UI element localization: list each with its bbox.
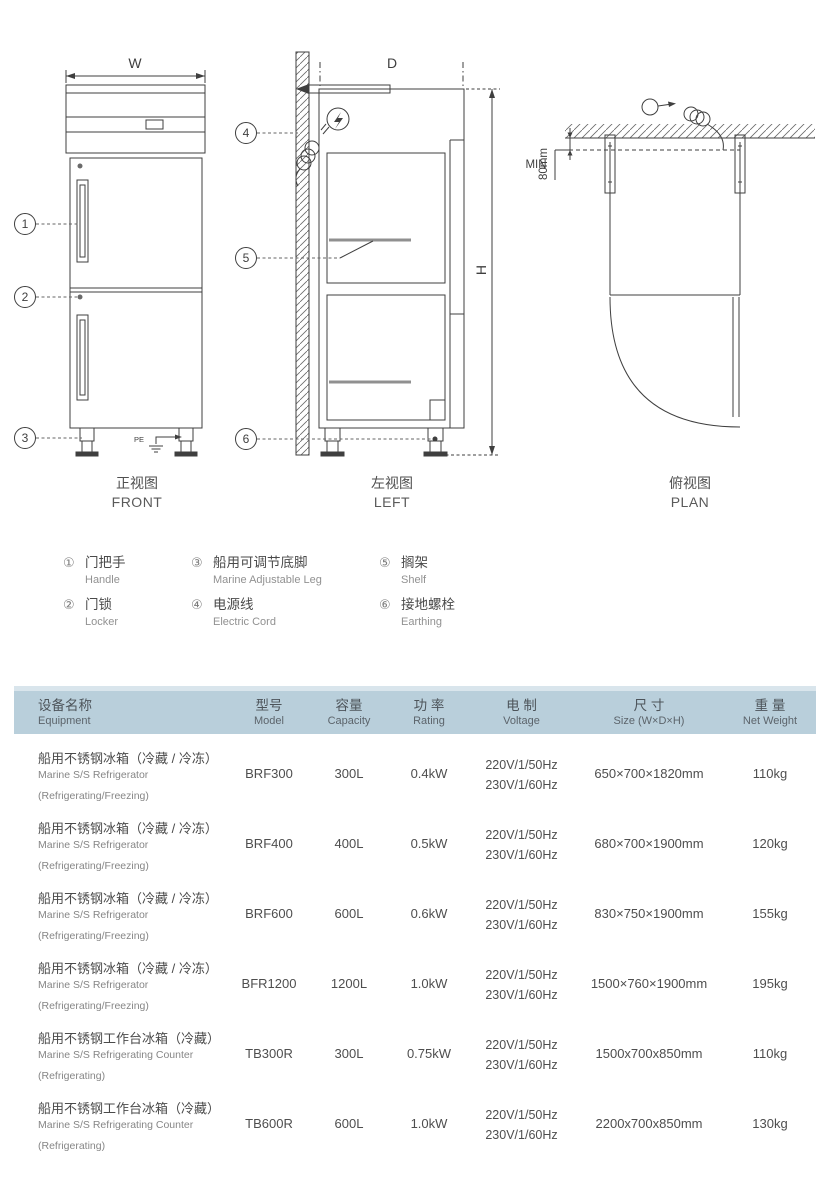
legend-cn-3: 船用可调节底脚 bbox=[213, 554, 379, 571]
svg-text:2: 2 bbox=[22, 290, 29, 304]
row2-voltage1: 220V/1/50Hz bbox=[469, 825, 574, 845]
legend-cn-5: 搁架 bbox=[401, 554, 569, 571]
callout-1-marker: 1 bbox=[15, 214, 79, 235]
callout-6-marker: 6 bbox=[236, 429, 438, 450]
legend-num-4: ④ bbox=[191, 596, 213, 613]
legend-en-4: Electric Cord bbox=[213, 615, 379, 629]
header-model: 型号 Model bbox=[229, 696, 309, 729]
dim-d-label: D bbox=[387, 55, 397, 71]
legend-column-3: ⑤ 搁架 Shelf ⑥ 接地螺栓 Earthing bbox=[379, 554, 569, 629]
front-view-drawing: 1 2 3 W PE bbox=[0, 50, 230, 470]
row4-name-en: Marine S/S Refrigerator bbox=[38, 979, 229, 992]
row1-name-note: (Refrigerating/Freezing) bbox=[38, 790, 229, 803]
legend-num-1: ① bbox=[63, 554, 85, 571]
svg-text:1: 1 bbox=[22, 217, 29, 231]
row3-size: 830×750×1900mm bbox=[574, 882, 724, 921]
svg-text:3: 3 bbox=[22, 431, 29, 445]
row2-capacity: 400L bbox=[309, 812, 389, 851]
row1-voltage1: 220V/1/50Hz bbox=[469, 755, 574, 775]
legend-item-handle: ① 门把手 Handle bbox=[63, 554, 191, 587]
front-view-label: 正视图 FRONT bbox=[67, 474, 207, 512]
row6-size: 2200x700x850mm bbox=[574, 1092, 724, 1131]
left-label-en: LEFT bbox=[322, 493, 462, 512]
legend-cn-6: 接地螺栓 bbox=[401, 596, 569, 613]
header-size: 尺 寸 Size (W×D×H) bbox=[574, 696, 724, 729]
legend-column-1: ① 门把手 Handle ② 门锁 Locker bbox=[63, 554, 191, 629]
parts-legend: ① 门把手 Handle ② 门锁 Locker ③ 船用可调节底脚 Marin… bbox=[63, 554, 569, 629]
header-voltage: 电 制 Voltage bbox=[469, 696, 574, 729]
gap-label: 80mm bbox=[538, 148, 550, 180]
legend-item-earthing: ⑥ 接地螺栓 Earthing bbox=[379, 596, 569, 629]
row2-rating: 0.5kW bbox=[389, 812, 469, 851]
row3-name-cn: 船用不锈钢冰箱（冷藏 / 冷冻） bbox=[38, 891, 229, 906]
row4-model: BFR1200 bbox=[229, 952, 309, 991]
legend-cn-1: 门把手 bbox=[85, 554, 191, 571]
row3-model: BRF600 bbox=[229, 882, 309, 921]
legend-item-locker: ② 门锁 Locker bbox=[63, 596, 191, 629]
row5-weight: 110kg bbox=[724, 1022, 816, 1061]
row4-name-cn: 船用不锈钢冰箱（冷藏 / 冷冻） bbox=[38, 961, 229, 976]
legend-en-1: Handle bbox=[85, 573, 191, 587]
datasheet-page: 1 2 3 W PE bbox=[0, 0, 830, 1186]
front-label-en: FRONT bbox=[67, 493, 207, 512]
legend-cn-2: 门锁 bbox=[85, 596, 191, 613]
row3-name-en: Marine S/S Refrigerator bbox=[38, 909, 229, 922]
header-net-weight: 重 量 Net Weight bbox=[724, 696, 816, 729]
callout-3-marker: 3 bbox=[15, 428, 83, 449]
plan-view-drawing: MIN 80mm bbox=[510, 50, 830, 470]
plan-label-cn: 俯视图 bbox=[620, 474, 760, 493]
row6-model: TB600R bbox=[229, 1092, 309, 1131]
row5-voltage2: 230V/1/60Hz bbox=[469, 1055, 574, 1075]
row3-weight: 155kg bbox=[724, 882, 816, 921]
legend-num-3: ③ bbox=[191, 554, 213, 571]
left-view-label: 左视图 LEFT bbox=[322, 474, 462, 512]
left-view-drawing: 4 5 6 D H bbox=[230, 50, 510, 470]
row6-voltage2: 230V/1/60Hz bbox=[469, 1125, 574, 1145]
legend-en-3: Marine Adjustable Leg bbox=[213, 573, 379, 587]
row5-rating: 0.75kW bbox=[389, 1022, 469, 1061]
pe-label: PE bbox=[134, 435, 144, 444]
table-row: 船用不锈钢冰箱（冷藏 / 冷冻） Marine S/S Refrigerator… bbox=[14, 882, 816, 952]
row6-name-cn: 船用不锈钢工作台冰箱（冷藏） bbox=[38, 1101, 229, 1116]
legend-item-adjustable-leg: ③ 船用可调节底脚 Marine Adjustable Leg bbox=[191, 554, 379, 587]
header-rating: 功 率 Rating bbox=[389, 696, 469, 729]
row6-voltage1: 220V/1/50Hz bbox=[469, 1105, 574, 1125]
row5-name-note: (Refrigerating) bbox=[38, 1070, 229, 1083]
row2-name-note: (Refrigerating/Freezing) bbox=[38, 860, 229, 873]
header-capacity: 容量 Capacity bbox=[309, 696, 389, 729]
row6-name-en: Marine S/S Refrigerating Counter bbox=[38, 1119, 229, 1132]
legend-num-6: ⑥ bbox=[379, 596, 401, 613]
row4-weight: 195kg bbox=[724, 952, 816, 991]
table-row: 船用不锈钢工作台冰箱（冷藏） Marine S/S Refrigerating … bbox=[14, 1022, 816, 1092]
legend-column-2: ③ 船用可调节底脚 Marine Adjustable Leg ④ 电源线 El… bbox=[191, 554, 379, 629]
svg-text:4: 4 bbox=[243, 126, 250, 140]
row3-voltage1: 220V/1/50Hz bbox=[469, 895, 574, 915]
callout-2-marker: 2 bbox=[15, 287, 78, 308]
row6-capacity: 600L bbox=[309, 1092, 389, 1131]
front-label-cn: 正视图 bbox=[67, 474, 207, 493]
callout-4-marker: 4 bbox=[236, 123, 299, 144]
row4-voltage2: 230V/1/60Hz bbox=[469, 985, 574, 1005]
row6-rating: 1.0kW bbox=[389, 1092, 469, 1131]
row1-rating: 0.4kW bbox=[389, 742, 469, 781]
spec-table: 设备名称 Equipment 型号 Model 容量 Capacity 功 率 … bbox=[14, 686, 816, 1162]
legend-en-2: Locker bbox=[85, 615, 191, 629]
row3-rating: 0.6kW bbox=[389, 882, 469, 921]
row4-voltage1: 220V/1/50Hz bbox=[469, 965, 574, 985]
row5-name-en: Marine S/S Refrigerating Counter bbox=[38, 1049, 229, 1062]
table-row: 船用不锈钢冰箱（冷藏 / 冷冻） Marine S/S Refrigerator… bbox=[14, 742, 816, 812]
row2-name-en: Marine S/S Refrigerator bbox=[38, 839, 229, 852]
row5-capacity: 300L bbox=[309, 1022, 389, 1061]
legend-cn-4: 电源线 bbox=[213, 596, 379, 613]
row3-name-note: (Refrigerating/Freezing) bbox=[38, 930, 229, 943]
svg-text:5: 5 bbox=[243, 251, 250, 265]
row5-model: TB300R bbox=[229, 1022, 309, 1061]
left-label-cn: 左视图 bbox=[322, 474, 462, 493]
row1-weight: 110kg bbox=[724, 742, 816, 781]
plan-view-label: 俯视图 PLAN bbox=[620, 474, 760, 512]
row1-capacity: 300L bbox=[309, 742, 389, 781]
row3-voltage2: 230V/1/60Hz bbox=[469, 915, 574, 935]
row3-capacity: 600L bbox=[309, 882, 389, 921]
row2-name-cn: 船用不锈钢冰箱（冷藏 / 冷冻） bbox=[38, 821, 229, 836]
table-row: 船用不锈钢冰箱（冷藏 / 冷冻） Marine S/S Refrigerator… bbox=[14, 952, 816, 1022]
dim-w-label: W bbox=[128, 55, 142, 71]
row2-model: BRF400 bbox=[229, 812, 309, 851]
table-header-row: 设备名称 Equipment 型号 Model 容量 Capacity 功 率 … bbox=[14, 691, 816, 734]
row1-model: BRF300 bbox=[229, 742, 309, 781]
row5-size: 1500x700x850mm bbox=[574, 1022, 724, 1061]
row2-weight: 120kg bbox=[724, 812, 816, 851]
row4-name-note: (Refrigerating/Freezing) bbox=[38, 1000, 229, 1013]
legend-item-shelf: ⑤ 搁架 Shelf bbox=[379, 554, 569, 587]
table-row: 船用不锈钢冰箱（冷藏 / 冷冻） Marine S/S Refrigerator… bbox=[14, 812, 816, 882]
row5-name-cn: 船用不锈钢工作台冰箱（冷藏） bbox=[38, 1031, 229, 1046]
row2-size: 680×700×1900mm bbox=[574, 812, 724, 851]
legend-item-electric-cord: ④ 电源线 Electric Cord bbox=[191, 596, 379, 629]
row1-name-en: Marine S/S Refrigerator bbox=[38, 769, 229, 782]
row1-size: 650×700×1820mm bbox=[574, 742, 724, 781]
row2-voltage2: 230V/1/60Hz bbox=[469, 845, 574, 865]
svg-text:6: 6 bbox=[243, 432, 250, 446]
row6-name-note: (Refrigerating) bbox=[38, 1140, 229, 1153]
dim-h-label: H bbox=[473, 265, 489, 275]
plan-label-en: PLAN bbox=[620, 493, 760, 512]
table-row: 船用不锈钢工作台冰箱（冷藏） Marine S/S Refrigerating … bbox=[14, 1092, 816, 1162]
row4-size: 1500×760×1900mm bbox=[574, 952, 724, 991]
legend-en-6: Earthing bbox=[401, 615, 569, 629]
legend-num-5: ⑤ bbox=[379, 554, 401, 571]
row4-rating: 1.0kW bbox=[389, 952, 469, 991]
row1-name-cn: 船用不锈钢冰箱（冷藏 / 冷冻） bbox=[38, 751, 229, 766]
row4-capacity: 1200L bbox=[309, 952, 389, 991]
row6-weight: 130kg bbox=[724, 1092, 816, 1131]
row5-voltage1: 220V/1/50Hz bbox=[469, 1035, 574, 1055]
legend-num-2: ② bbox=[63, 596, 85, 613]
callout-5-marker: 5 bbox=[236, 248, 341, 269]
header-equipment: 设备名称 Equipment bbox=[14, 696, 229, 729]
row1-voltage2: 230V/1/60Hz bbox=[469, 775, 574, 795]
legend-en-5: Shelf bbox=[401, 573, 569, 587]
